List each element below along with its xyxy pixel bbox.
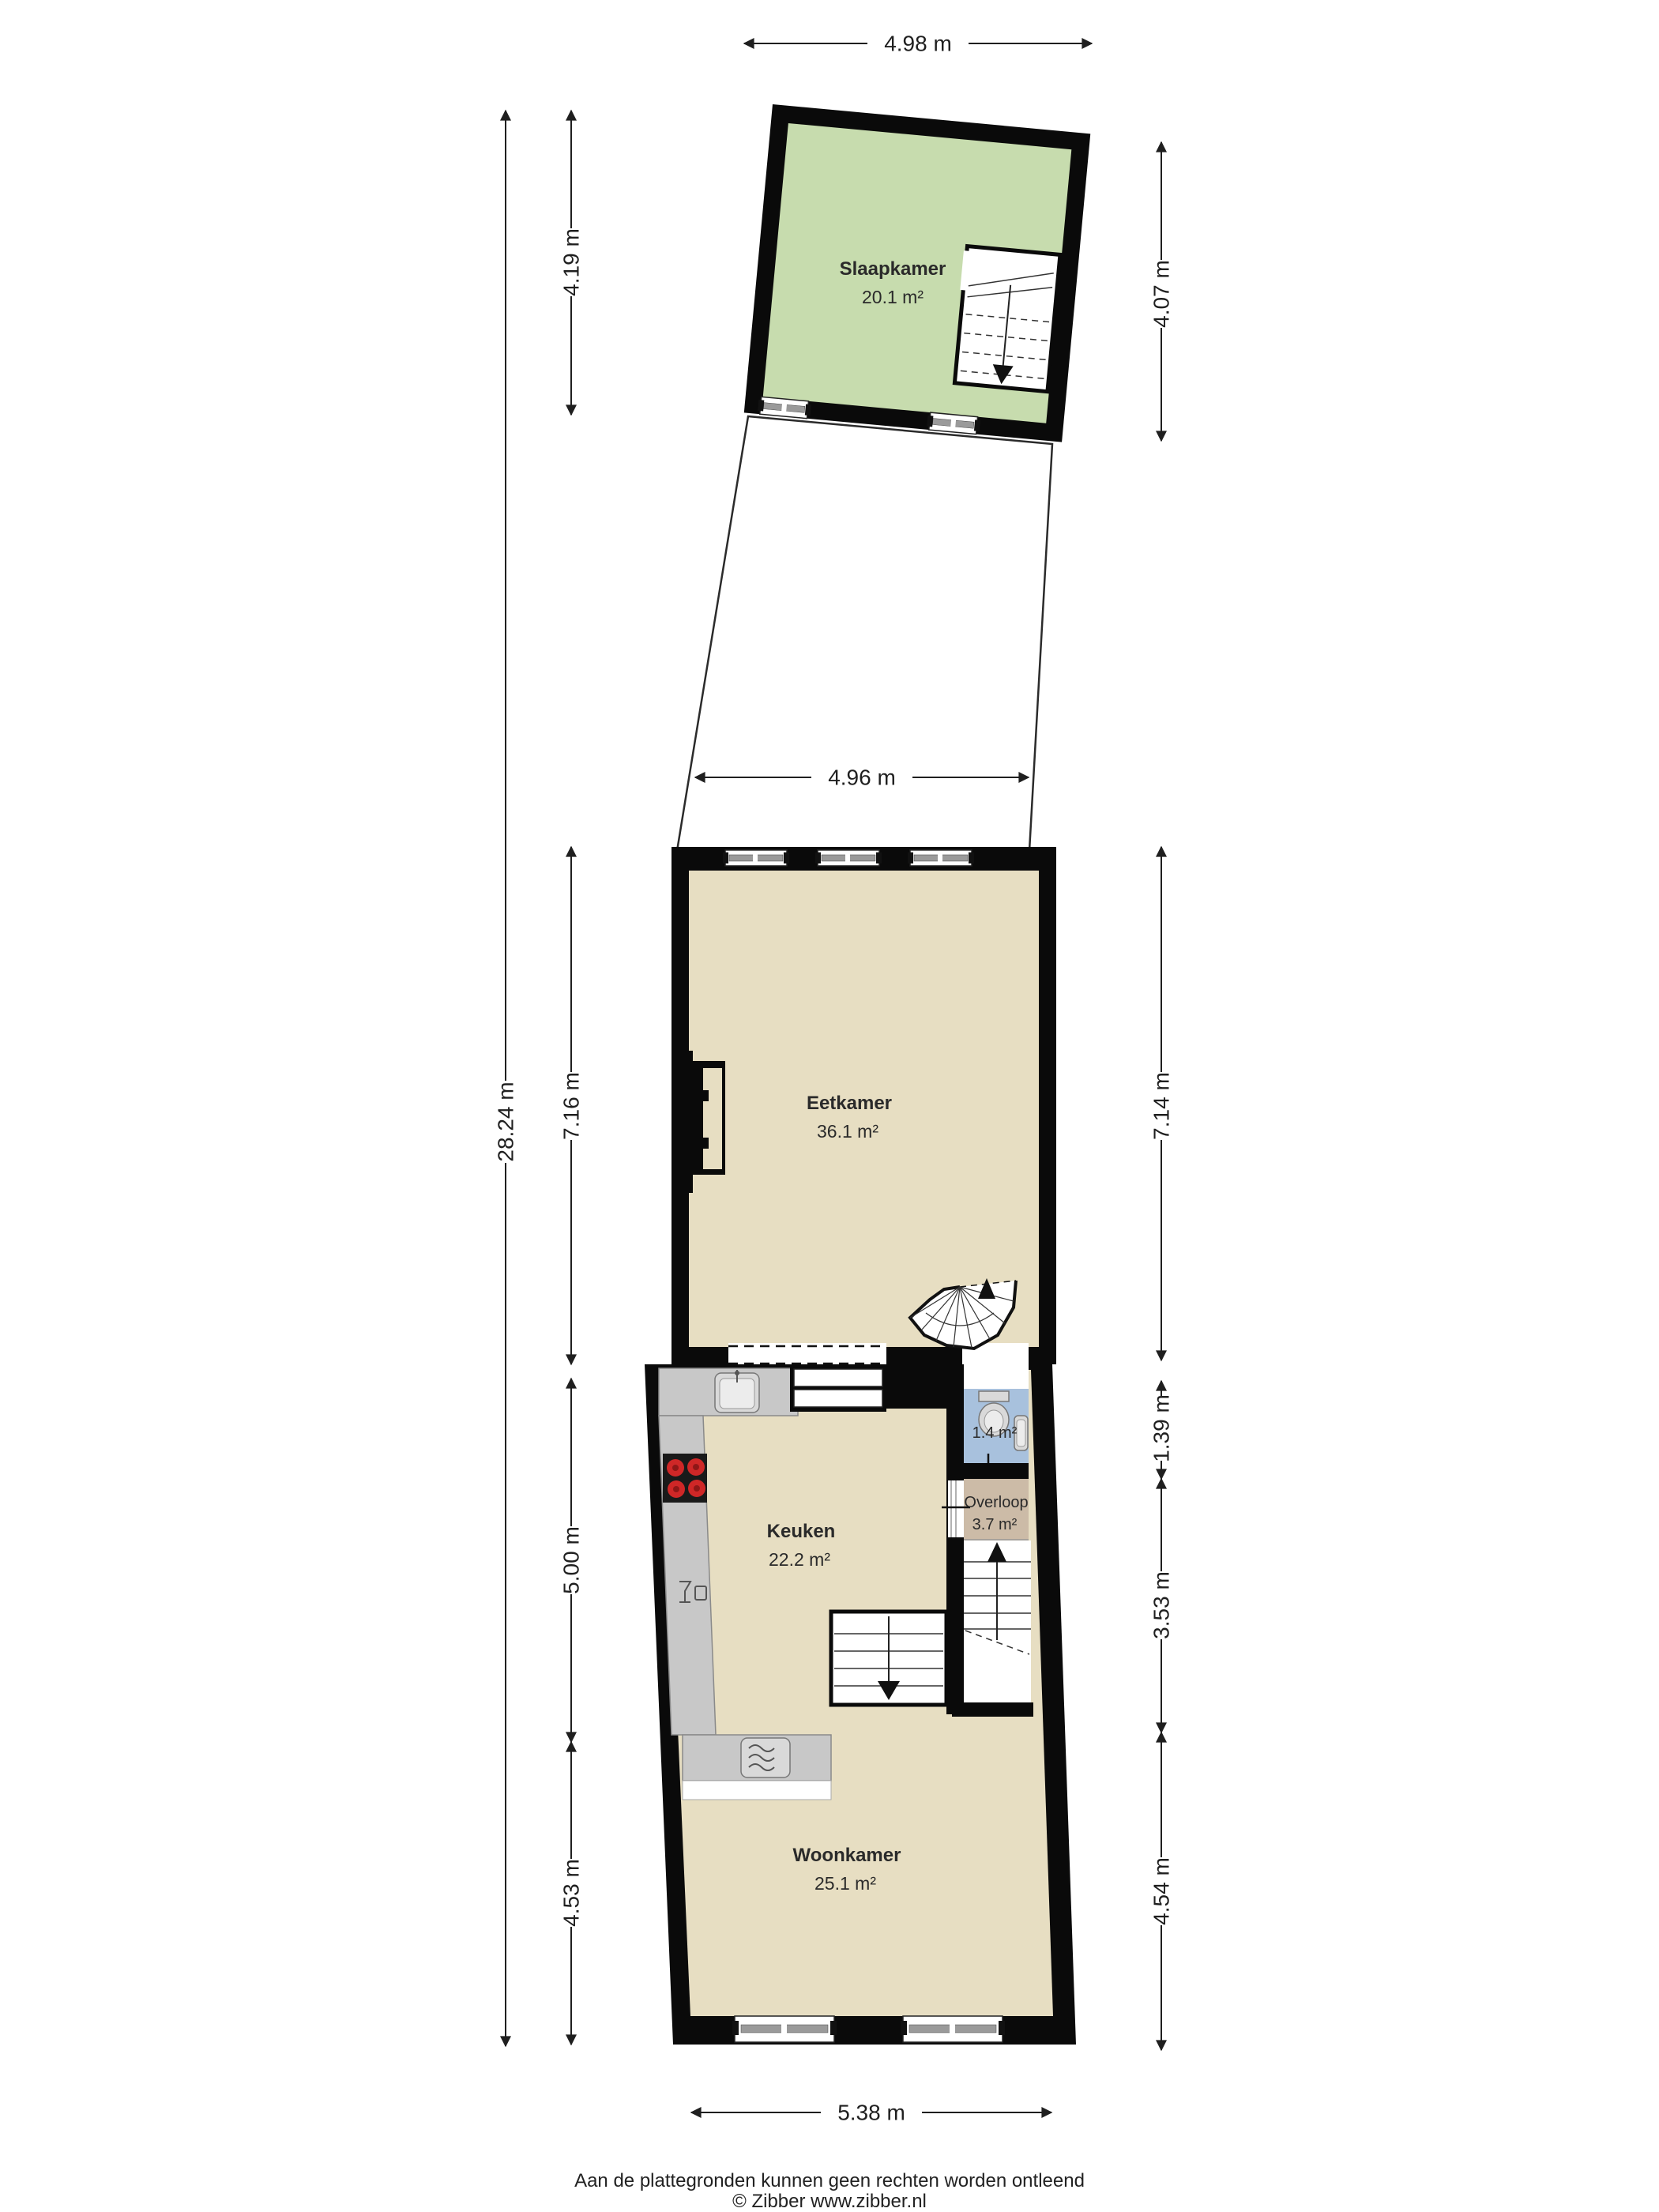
dim-eetkamer-right: 7.14 m	[1149, 847, 1174, 1360]
footer-disclaimer: Aan de plattegronden kunnen geen rechten…	[574, 2170, 1085, 2191]
serving-hatch	[790, 1364, 886, 1412]
kitchen-bottom-counter	[683, 1735, 831, 1800]
dim-eetkamer-left-label: 7.16 m	[559, 1072, 584, 1140]
hall-column	[942, 1364, 1033, 1717]
eetkamer-area: 36.1 m²	[817, 1121, 878, 1142]
upper-stairs	[964, 1540, 1031, 1702]
woonkamer-name: Woonkamer	[793, 1845, 901, 1866]
dim-eetkamer-left: 7.16 m	[559, 847, 584, 1364]
oven	[741, 1738, 790, 1777]
chimney-recess	[671, 1051, 725, 1193]
dim-bedroom-right: 4.07 m	[1149, 142, 1174, 441]
dim-mid-width-label: 4.96 m	[828, 766, 896, 790]
dim-top-width-label: 4.98 m	[884, 32, 952, 56]
dim-woonkamer-left: 4.53 m	[559, 1742, 584, 2045]
lower-block	[645, 1364, 1076, 2045]
woonkamer-window-1	[732, 2016, 837, 2042]
eetkamer-window-3	[908, 850, 974, 866]
floorplan-page: Slaapkamer 20.1 m²	[0, 0, 1659, 2212]
dim-total-left: 28.24 m	[494, 111, 518, 2046]
dim-bottom-width-label: 5.38 m	[837, 2101, 905, 2125]
dim-woonkamer-right: 4.54 m	[1149, 1732, 1174, 2050]
toilet-area: 1.4 m²	[972, 1424, 1018, 1442]
wall-chunk	[886, 1364, 950, 1409]
slaapkamer-stairs	[951, 246, 1060, 392]
slaapkamer-area: 20.1 m²	[862, 287, 924, 307]
dim-bedroom-left: 4.19 m	[559, 111, 584, 415]
dim-bedroom-left-label: 4.19 m	[559, 228, 584, 296]
footer-copyright: © Zibber www.zibber.nl	[732, 2191, 927, 2212]
dim-stairs-right: 3.53 m	[1149, 1479, 1174, 1732]
dim-top-width: 4.98 m	[744, 32, 1092, 56]
footer: Aan de plattegronden kunnen geen rechten…	[574, 2170, 1085, 2212]
slaapkamer-name: Slaapkamer	[840, 258, 946, 280]
counter-step	[683, 1781, 831, 1800]
floorplan-canvas: Slaapkamer 20.1 m²	[0, 0, 1659, 2212]
dim-total-left-label: 28.24 m	[494, 1082, 518, 1161]
dim-eetkamer-right-label: 7.14 m	[1149, 1072, 1174, 1140]
dim-keuken-left: 5.00 m	[559, 1379, 584, 1742]
dim-woonkamer-right-label: 4.54 m	[1149, 1857, 1174, 1925]
stairwell-void	[964, 1364, 1029, 1389]
woonkamer-area: 25.1 m²	[814, 1873, 876, 1894]
kitchen-top-counter	[659, 1368, 798, 1416]
keuken-name: Keuken	[767, 1521, 836, 1542]
dim-toilet-right: 1.39 m	[1149, 1381, 1174, 1479]
dim-woonkamer-left-label: 4.53 m	[559, 1859, 584, 1927]
eetkamer-window-2	[815, 850, 882, 866]
keuken-area: 22.2 m²	[769, 1549, 830, 1570]
overloop-name: Overloop	[964, 1494, 1028, 1511]
dim-stairs-right-label: 3.53 m	[1149, 1571, 1174, 1639]
overloop-area: 3.7 m²	[972, 1516, 1018, 1533]
dim-toilet-right-label: 1.39 m	[1149, 1394, 1174, 1462]
dim-keuken-left-label: 5.00 m	[559, 1526, 584, 1594]
dim-bottom-width: 5.38 m	[691, 2101, 1051, 2125]
eetkamer-open-passage	[728, 1343, 886, 1367]
dim-bedroom-right-label: 4.07 m	[1149, 260, 1174, 328]
eetkamer-name: Eetkamer	[807, 1093, 892, 1114]
eetkamer-window-1	[723, 850, 789, 866]
woonkamer-window-2	[901, 2016, 1005, 2042]
basement-stairs	[831, 1612, 946, 1705]
